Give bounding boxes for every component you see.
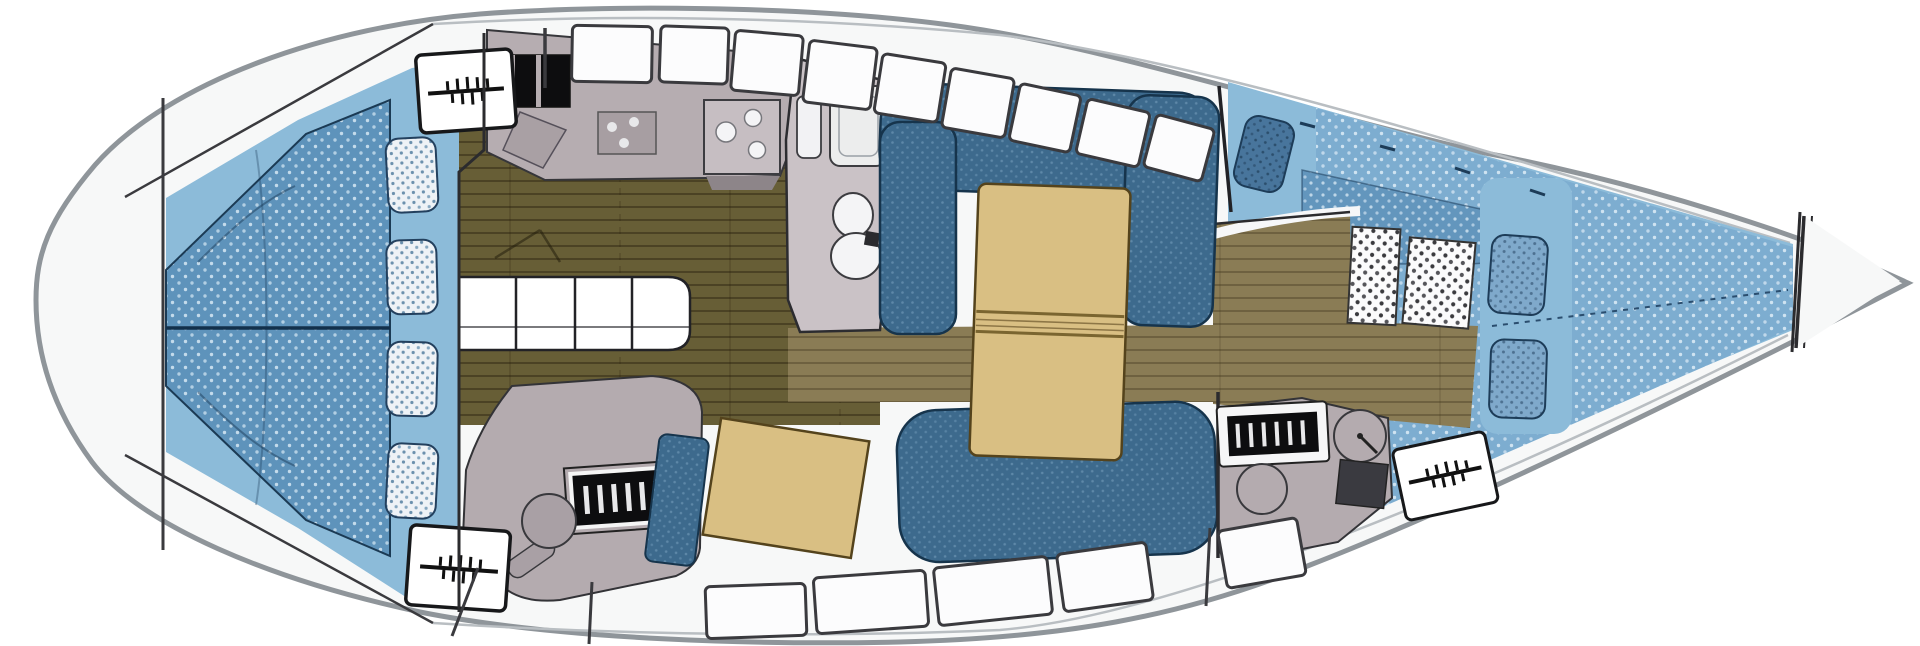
coachroof-window bbox=[731, 30, 804, 96]
clock-dial-icon bbox=[1334, 410, 1386, 462]
forward-berth-pillow-1 bbox=[1487, 234, 1548, 316]
coachroof-window bbox=[802, 40, 877, 110]
burner-icon bbox=[598, 112, 656, 154]
boat-floor-plan bbox=[0, 0, 1920, 646]
coachroof-window bbox=[874, 53, 947, 122]
coachroof-window bbox=[813, 570, 929, 634]
desk-instrument-panel bbox=[1217, 401, 1330, 467]
aft-berth-pillow-1 bbox=[385, 137, 439, 214]
coachroof-window bbox=[941, 68, 1014, 138]
coachroof-window bbox=[659, 26, 729, 84]
coachroof-window bbox=[1218, 517, 1307, 588]
checker-floor-1 bbox=[1348, 227, 1401, 325]
aft-berth-pillow-2 bbox=[386, 239, 438, 314]
aft-berth-pillow-3 bbox=[386, 341, 438, 416]
saloon-table bbox=[969, 183, 1130, 460]
coachroof-window bbox=[933, 556, 1052, 626]
stool-icon bbox=[522, 494, 576, 548]
coachroof-window bbox=[705, 583, 807, 638]
forward-berth-pillow-2 bbox=[1489, 339, 1548, 419]
head-shelf bbox=[797, 96, 821, 158]
companionway-steps bbox=[459, 277, 690, 350]
settee-left-arm bbox=[880, 122, 956, 334]
deck-hatch-aft-top bbox=[415, 49, 516, 134]
equipment-box bbox=[1336, 460, 1388, 509]
coachroof-window bbox=[572, 25, 653, 82]
stool-icon bbox=[1237, 464, 1287, 514]
checker-floor-2 bbox=[1402, 237, 1475, 328]
coachroof-window bbox=[1056, 542, 1153, 612]
sink-icon bbox=[704, 100, 780, 190]
chart-table bbox=[703, 418, 870, 558]
coachroof-window bbox=[1076, 99, 1151, 168]
anchor-locker bbox=[1796, 216, 1900, 348]
floor-plan-canvas bbox=[0, 0, 1920, 646]
aft-berth-pillow-4 bbox=[385, 443, 439, 520]
coachroof-window bbox=[1009, 83, 1082, 153]
